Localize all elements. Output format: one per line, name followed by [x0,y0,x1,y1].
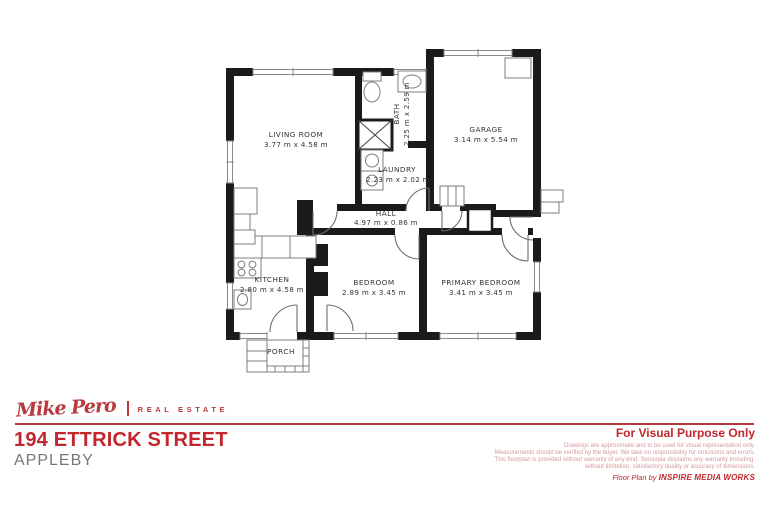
visual-purpose-heading: For Visual Purpose Only [495,426,755,440]
window [226,141,234,183]
room-label-kitchen: KITCHEN [255,275,290,284]
disclaimer-line: This floorplan is provided without warra… [495,457,755,464]
room-dims-primary-bedroom: 3.41 m x 3.45 m [449,288,513,297]
sofa [234,188,257,244]
room-label-bedroom: BEDROOM [353,278,394,287]
logo-divider [127,401,129,416]
room-dims-living-room: 3.77 m x 4.58 m [264,140,328,149]
disclaimer-block: For Visual Purpose Only Drawings are app… [495,426,755,482]
door-arc [270,305,297,332]
hot-water-cupboard [358,120,392,150]
window [440,332,516,340]
room-dims-hall: 4.97 m x 0.86 m [354,218,418,227]
entry-closet [468,209,492,232]
disclaimer-line: Drawings are approximate and to be used … [495,443,755,450]
room-dims-garage: 3.14 m x 5.54 m [454,135,518,144]
credit-prefix: Floor Plan by [612,473,658,482]
room-dims-kitchen: 2.80 m x 4.58 m [240,285,304,294]
floorplan-credit: Floor Plan by INSPIRE MEDIA WORKS [495,473,755,482]
credit-name: INSPIRE MEDIA WORKS [659,473,755,482]
disclaimer-line: without limitation, satisfactory quality… [495,464,755,471]
door-arc [395,235,419,259]
room-dims-laundry: 2.23 m x 2.02 m [366,175,430,184]
room-dims-bedroom: 2.89 m x 3.45 m [342,288,406,297]
room-dims-bath: 2.25 m x 2.59 m [402,82,411,146]
address-suburb: APPLEBY [14,452,94,470]
disclaimer-line: Measurements should be verified by the b… [495,450,755,457]
room-label-bath: BATH [392,103,401,124]
window [240,332,267,340]
logo-real-estate-text: REAL ESTATE [138,403,228,414]
entry-landing-steps [541,190,563,213]
brand-logo: Mike Pero REAL ESTATE [16,397,228,419]
window [334,332,398,340]
garage-steps [440,186,464,206]
address-street: 194 ETTRICK STREET [14,429,228,452]
room-label-hall: HALL [376,209,397,218]
floorplan-page: LIVING ROOM 3.77 m x 4.58 m BATH 2.25 m … [0,0,768,512]
room-label-porch: PORCH [267,347,295,356]
window [226,283,234,309]
door-arc [502,235,528,261]
red-divider-rule [15,423,754,425]
porch-deck [247,340,309,372]
room-label-garage: GARAGE [469,125,502,134]
window [253,68,333,76]
garage-storage [505,58,531,78]
window [533,262,541,292]
room-label-primary-bedroom: PRIMARY BEDROOM [441,278,520,287]
toilet [363,72,381,102]
mike-pero-script-logo: Mike Pero [15,394,116,421]
room-label-living-room: LIVING ROOM [269,130,324,139]
window [444,49,512,57]
door-arc [327,305,353,331]
door-arc [406,188,429,211]
room-label-laundry: LAUNDRY [378,165,416,174]
